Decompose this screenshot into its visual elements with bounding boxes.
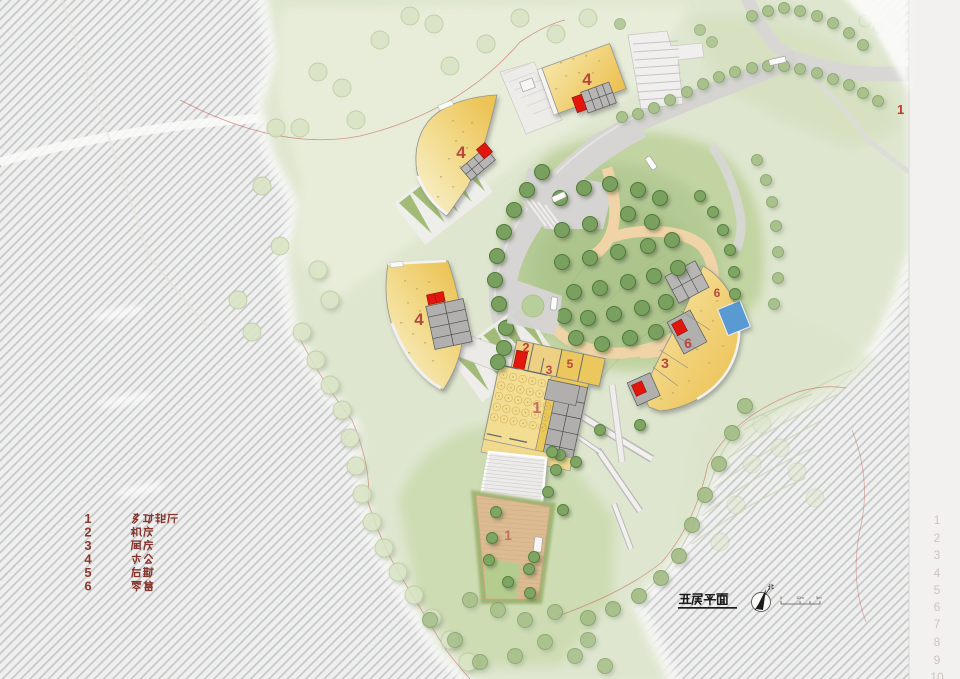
svg-text:5m: 5m [816, 595, 822, 600]
svg-text:5: 5 [934, 583, 941, 597]
svg-text:7: 7 [934, 617, 941, 631]
svg-text:4: 4 [414, 310, 424, 329]
svg-text:9: 9 [934, 653, 941, 667]
svg-text:3: 3 [661, 355, 669, 371]
svg-text:6: 6 [684, 335, 692, 351]
svg-text:6: 6 [714, 286, 721, 300]
svg-text:8: 8 [934, 635, 941, 649]
svg-text:2: 2 [934, 531, 941, 545]
svg-text:4: 4 [934, 566, 941, 580]
svg-text:10: 10 [930, 670, 944, 679]
svg-text:5: 5 [567, 357, 574, 371]
svg-text:2: 2 [522, 340, 529, 355]
svg-text:3: 3 [546, 363, 553, 377]
svg-text:1: 1 [897, 102, 904, 117]
svg-text:4: 4 [456, 143, 466, 162]
svg-text:4: 4 [582, 70, 592, 89]
svg-text:3: 3 [934, 548, 941, 562]
svg-text:1: 1 [533, 400, 542, 417]
svg-text:1: 1 [934, 513, 941, 527]
svg-text:6: 6 [84, 579, 91, 594]
svg-text:1: 1 [504, 527, 512, 543]
svg-text:10m: 10m [796, 595, 804, 600]
svg-text:6: 6 [934, 600, 941, 614]
